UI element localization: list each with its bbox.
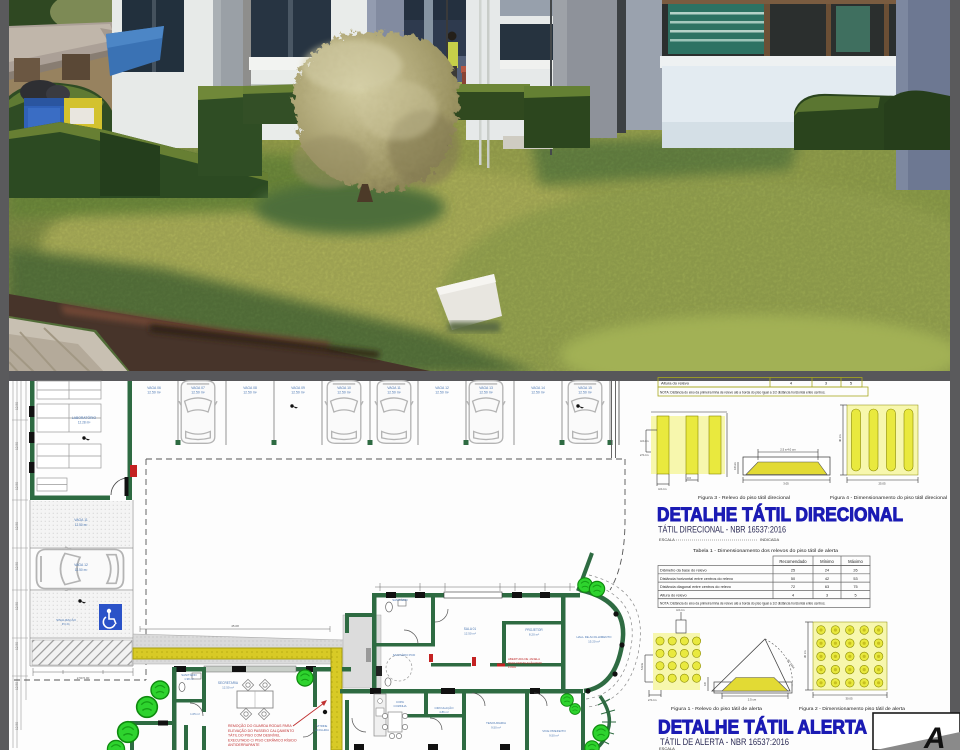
svg-text:Máximo: Máximo <box>848 559 863 564</box>
svg-text:3: 3 <box>826 594 828 598</box>
svg-text:63: 63 <box>825 585 829 589</box>
svg-text:VAGA 08: VAGA 08 <box>243 386 257 390</box>
svg-text:1.05 m²: 1.05 m² <box>190 712 200 716</box>
svg-text:15.20 m²: 15.20 m² <box>588 640 600 644</box>
svg-text:2.5 a 4.0 cm: 2.5 a 4.0 cm <box>780 448 796 452</box>
svg-text:Distância diagonal entre centr: Distância diagonal entre centros do rele… <box>660 585 731 589</box>
svg-text:Recomendado: Recomendado <box>779 559 807 564</box>
svg-text:COZINHA: COZINHA <box>393 704 406 708</box>
svg-text:TÁTIL DO PISO COM DESNÍVEL: TÁTIL DO PISO COM DESNÍVEL <box>228 734 280 738</box>
svg-text:42: 42 <box>825 577 829 581</box>
svg-text:Figura 3 - Relevo do piso táti: Figura 3 - Relevo do piso tátil direcion… <box>698 495 790 500</box>
svg-text:VAGA 15: VAGA 15 <box>578 386 592 390</box>
svg-text:2.5 cm: 2.5 cm <box>648 698 657 702</box>
svg-text:FORA: FORA <box>508 665 516 669</box>
svg-text:ACOLHIDA: ACOLHIDA <box>315 728 329 732</box>
svg-text:TESOURARIA: TESOURARIA <box>486 721 507 725</box>
svg-text:VAGA 07: VAGA 07 <box>191 386 205 390</box>
svg-text:50: 50 <box>791 577 795 581</box>
svg-text:12.50 m²: 12.50 m² <box>578 391 592 395</box>
svg-text:12.50 m²: 12.50 m² <box>191 391 205 395</box>
svg-text:1.98 m²: 1.98 m² <box>184 677 194 681</box>
svg-text:A: A <box>923 722 946 750</box>
svg-text:DETALHE TÁTIL DIRECIONAL: DETALHE TÁTIL DIRECIONAL <box>657 503 903 526</box>
svg-text:45.08: 45.08 <box>231 624 239 628</box>
svg-text:12.50 m²: 12.50 m² <box>337 391 351 395</box>
svg-text:25: 25 <box>791 569 795 573</box>
svg-text:12.50: 12.50 <box>15 522 19 530</box>
svg-text:Altura do relevo: Altura do relevo <box>660 594 687 598</box>
svg-text:ESCALA: ESCALA <box>659 537 675 542</box>
svg-text:12.50 m²: 12.50 m² <box>291 391 305 395</box>
svg-text:12.50: 12.50 <box>15 682 19 690</box>
svg-text:4: 4 <box>792 594 794 598</box>
svg-text:12.50: 12.50 <box>15 722 19 730</box>
svg-text:2.5 cm: 2.5 cm <box>748 698 757 702</box>
svg-text:0.8: 0.8 <box>703 682 707 686</box>
svg-text:4.0 cm: 4.0 cm <box>676 608 685 612</box>
svg-text:4.86 m²: 4.86 m² <box>439 710 449 714</box>
svg-text:30 cm: 30 cm <box>803 650 807 658</box>
svg-text:ELEVAÇÃO DO PASSEIO CALÇAMENTO: ELEVAÇÃO DO PASSEIO CALÇAMENTO <box>228 728 294 733</box>
svg-text:0.8 cm: 0.8 cm <box>733 462 737 470</box>
svg-text:12.50 m²: 12.50 m² <box>479 391 493 395</box>
svg-text:12.50 m²: 12.50 m² <box>435 391 449 395</box>
svg-text:4.0 cm: 4.0 cm <box>640 439 649 443</box>
svg-text:ESCALA: ESCALA <box>659 746 675 750</box>
svg-text:HALL DE ACOLHIMENTO: HALL DE ACOLHIMENTO <box>576 635 612 639</box>
svg-text:Tabela 1 - Dimensionamento dos: Tabela 1 - Dimensionamento dos relevos d… <box>693 548 838 554</box>
svg-text:2.5 cm: 2.5 cm <box>640 453 649 457</box>
svg-text:12.50 m²: 12.50 m² <box>243 391 257 395</box>
svg-text:12.50 m²: 12.50 m² <box>75 568 88 572</box>
svg-text:Figura 4 - Dimensionamento do: Figura 4 - Dimensionamento do piso tátil… <box>830 495 947 500</box>
svg-text:75: 75 <box>853 585 857 589</box>
svg-text:SANITÁRIO: SANITÁRIO <box>392 598 408 602</box>
svg-text:25.05: 25.05 <box>879 482 886 486</box>
svg-text:12.28 m²: 12.28 m² <box>78 421 91 425</box>
svg-text:40 cm: 40 cm <box>838 434 842 442</box>
svg-text:12.50 m²: 12.50 m² <box>222 686 234 690</box>
svg-text:12.50 m²: 12.50 m² <box>387 391 401 395</box>
svg-text:VICE PREFEITO: VICE PREFEITO <box>542 729 566 733</box>
svg-text:NOTA: Distância do eixo da pr: NOTA: Distância do eixo da primeira linh… <box>660 602 826 606</box>
svg-text:SANITÁRIO PCD: SANITÁRIO PCD <box>393 653 416 657</box>
svg-text:VAGA 12: VAGA 12 <box>74 563 88 567</box>
svg-text:26: 26 <box>853 569 857 573</box>
svg-text:12.50 m²: 12.50 m² <box>464 632 476 636</box>
svg-text:Figura 2 - Dimensionamento pis: Figura 2 - Dimensionamento piso tátil de… <box>799 706 905 711</box>
svg-text:ANTIDERRAPANTE: ANTIDERRAPANTE <box>228 743 260 747</box>
svg-text:5.0cm: 5.0cm <box>640 663 644 670</box>
svg-text:4.0 cm: 4.0 cm <box>658 487 667 491</box>
svg-text:VAGA 14: VAGA 14 <box>531 386 545 390</box>
svg-text:5: 5 <box>854 594 856 598</box>
svg-text:LABORATÓRIO: LABORATÓRIO <box>72 415 97 420</box>
svg-text:P.C.D.: P.C.D. <box>62 622 71 626</box>
svg-text:VAGA 06: VAGA 06 <box>147 386 161 390</box>
svg-text:VAGA 13: VAGA 13 <box>479 386 493 390</box>
svg-text:EXECUTADO C/ PISO CERÂMICO RÍG: EXECUTADO C/ PISO CERÂMICO RÍGIDO <box>228 738 297 742</box>
svg-text:TÁTIL DIRECIONAL - NBR 16537:2: TÁTIL DIRECIONAL - NBR 16537:2016 <box>658 525 786 536</box>
svg-text:12.50: 12.50 <box>15 482 19 490</box>
svg-text:12.50 m²: 12.50 m² <box>75 523 88 527</box>
svg-text:Diâmetro da base do relevo: Diâmetro da base do relevo <box>660 569 707 573</box>
svg-text:12.50 m²: 12.50 m² <box>531 391 545 395</box>
svg-text:VAGA 11: VAGA 11 <box>74 518 88 522</box>
svg-text:NOTA: Distância do eixo da pr: NOTA: Distância do eixo da primeira linh… <box>660 391 826 395</box>
svg-text:12.50: 12.50 <box>15 562 19 570</box>
svg-text:Altura do relévo: Altura do relévo <box>661 381 690 386</box>
svg-text:3.0: 3.0 <box>687 476 691 480</box>
svg-text:12.50: 12.50 <box>15 602 19 610</box>
svg-text:Mínimo: Mínimo <box>820 559 834 564</box>
svg-text:VAGA 11: VAGA 11 <box>387 386 401 390</box>
svg-text:30.05: 30.05 <box>846 697 853 701</box>
svg-text:SALA 01: SALA 01 <box>464 627 477 631</box>
svg-text:12.50: 12.50 <box>15 442 19 450</box>
svg-text:DETALHE TÁTIL ALERTA: DETALHE TÁTIL ALERTA <box>658 716 867 739</box>
svg-text:12.50 m²: 12.50 m² <box>147 391 161 395</box>
svg-text:53: 53 <box>853 577 857 581</box>
svg-text:72: 72 <box>791 585 795 589</box>
svg-text:9.50 m²: 9.50 m² <box>491 726 501 730</box>
svg-text:VITRINE: VITRINE <box>317 724 328 728</box>
svg-text:9.50 m²: 9.50 m² <box>549 734 559 738</box>
svg-text:REMOÇÃO DO GUARDA RODAS PARA: REMOÇÃO DO GUARDA RODAS PARA <box>228 723 292 728</box>
svg-text:8.20 m²: 8.20 m² <box>529 633 539 637</box>
svg-text:12.50: 12.50 <box>15 642 19 650</box>
svg-text:VAGA 10: VAGA 10 <box>337 386 351 390</box>
svg-text:VAGA 12: VAGA 12 <box>435 386 449 390</box>
svg-text:SECRETARIA: SECRETARIA <box>218 681 239 685</box>
svg-text:12.50: 12.50 <box>15 402 19 410</box>
svg-text:24: 24 <box>825 569 829 573</box>
svg-text:2.50 5.00: 2.50 5.00 <box>77 676 90 680</box>
svg-text:Distância horizontal entre cen: Distância horizontal entre centros do re… <box>660 577 733 581</box>
svg-text:INDICADA: INDICADA <box>760 537 779 542</box>
svg-text:TÁTIL DE ALERTA - NBR 16537:20: TÁTIL DE ALERTA - NBR 16537:2016 <box>660 737 789 748</box>
svg-text:3.05: 3.05 <box>783 482 789 486</box>
svg-text:Figura 1 - Relevo do piso táti: Figura 1 - Relevo do piso tátil de alert… <box>671 706 763 711</box>
svg-text:VAGA 09: VAGA 09 <box>291 386 305 390</box>
svg-text:PROJETOR: PROJETOR <box>525 628 543 632</box>
